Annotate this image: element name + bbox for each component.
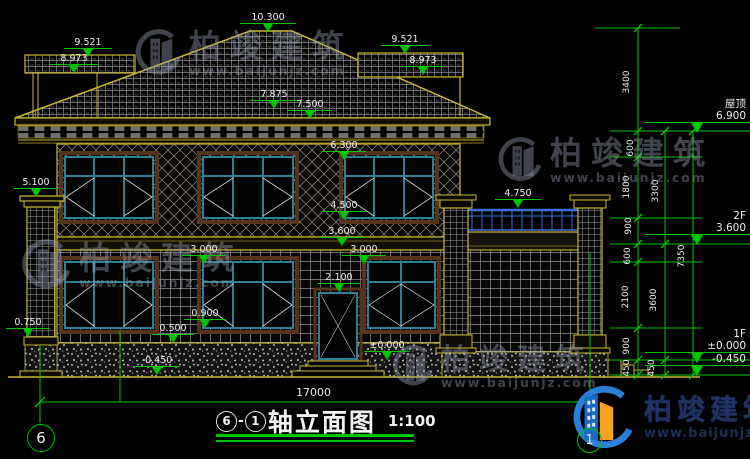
level-marker: 2.100 bbox=[318, 272, 360, 292]
level-marker: 0.500 bbox=[152, 323, 194, 343]
window bbox=[61, 153, 157, 222]
cad-elevation-drawing: 10.300 9.521 8.973 9.521 8.973 7.875 7.5… bbox=[0, 0, 750, 459]
eave-cornice bbox=[15, 118, 490, 143]
entry-door bbox=[315, 289, 361, 361]
level-marker: 9.521 bbox=[381, 34, 429, 54]
brand-name: 柏竣建筑 bbox=[644, 395, 750, 426]
dim-3400: 3400 bbox=[622, 71, 632, 94]
second-floor-windows bbox=[61, 153, 437, 222]
level-marker: ±0.000 bbox=[364, 340, 410, 360]
dim-total-width: 17000 bbox=[296, 386, 331, 399]
level-marker: 4.750 bbox=[495, 188, 541, 208]
title-underline-thin bbox=[216, 440, 414, 442]
level-marker: 3.000 bbox=[182, 244, 226, 264]
level-marker: 3.000 bbox=[342, 244, 386, 264]
window bbox=[199, 153, 297, 222]
dim-900: 900 bbox=[624, 217, 634, 234]
window bbox=[61, 258, 157, 332]
level-marker: 0.750 bbox=[6, 317, 50, 337]
level-marker: 5.100 bbox=[14, 177, 58, 197]
window bbox=[364, 258, 439, 332]
title-underline-thick bbox=[216, 434, 414, 437]
level-marker: 3.600 bbox=[319, 226, 365, 246]
dim-7350: 7350 bbox=[677, 245, 687, 268]
level-ground-right: -0.450 bbox=[645, 353, 750, 376]
dim-3300: 3300 bbox=[651, 180, 661, 203]
dim-450: 450 bbox=[622, 359, 632, 376]
dim-3600: 3600 bbox=[649, 289, 659, 312]
dim-450: 450 bbox=[647, 359, 657, 376]
annex bbox=[436, 195, 648, 377]
title-axis-to: 1 bbox=[245, 411, 266, 432]
level-marker: 7.500 bbox=[288, 99, 332, 119]
level-marker: -0.450 bbox=[134, 355, 180, 375]
dim-900: 900 bbox=[622, 337, 632, 354]
level-marker: 6.300 bbox=[322, 140, 366, 160]
level-roof: 屋顶 6.900 bbox=[645, 98, 750, 133]
title-axis-from: 6 bbox=[216, 411, 237, 432]
title-separator: - bbox=[238, 413, 244, 429]
level-2f: 2F 3.600 bbox=[645, 210, 750, 245]
level-marker: 10.300 bbox=[240, 12, 296, 32]
annex-railing bbox=[466, 210, 580, 230]
dim-600: 600 bbox=[626, 139, 636, 156]
axis-bubble-1: 1 bbox=[577, 428, 602, 453]
level-marker: 8.973 bbox=[402, 55, 444, 75]
floor-band bbox=[57, 237, 460, 250]
title-scale: 1:100 bbox=[388, 412, 436, 430]
level-marker: 8.973 bbox=[50, 53, 98, 73]
dim-1800: 1800 bbox=[622, 176, 632, 199]
dim-2100: 2100 bbox=[621, 286, 631, 309]
brand-url: www.baijunjz.com bbox=[644, 426, 750, 441]
axis-bubble-6: 6 bbox=[27, 424, 55, 452]
level-marker: 4.500 bbox=[322, 200, 366, 220]
dim-600: 600 bbox=[623, 247, 633, 264]
